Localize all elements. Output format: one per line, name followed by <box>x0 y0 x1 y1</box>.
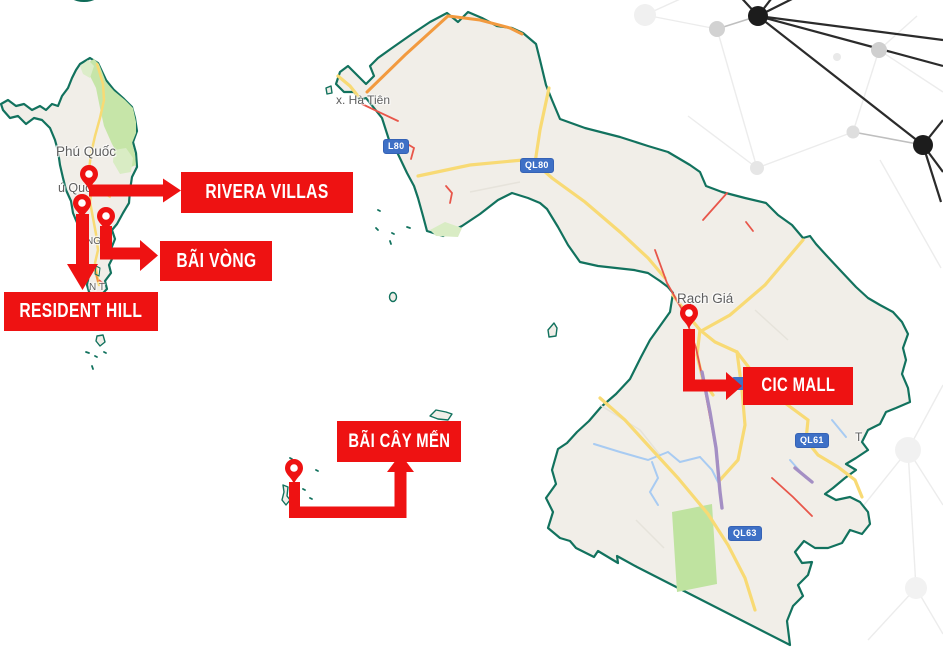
label-bai-vong[interactable]: BÃI VÒNG <box>160 241 272 281</box>
arrow-bai-cay-men <box>289 454 414 518</box>
label-resident-hill[interactable]: RESIDENT HILL <box>4 292 158 331</box>
label-cic-mall[interactable]: CIC MALL <box>743 367 853 405</box>
label-bai-cay-men[interactable]: BÃI CÂY MẾN <box>337 421 461 462</box>
label-cic-mall-text: CIC MALL <box>761 375 835 397</box>
arrow-cic-mall <box>683 329 742 400</box>
map-pin-bai-cay-men[interactable] <box>285 459 303 484</box>
label-bai-vong-text: BÃI VÒNG <box>176 250 256 273</box>
label-bai-cay-men-text: BÃI CÂY MẾN <box>348 431 450 453</box>
label-resident-hill-text: RESIDENT HILL <box>20 300 143 323</box>
map-pin-cic-mall[interactable] <box>680 304 698 329</box>
arrow-bai-vong <box>100 226 158 271</box>
arrow-resident-hill <box>67 214 98 290</box>
map-canvas: Phú Quốc ú Quốc NG T N T x. Hà Tiên Rạch… <box>0 0 943 654</box>
map-pin-bai-vong[interactable] <box>97 207 115 232</box>
label-rivera-villas[interactable]: RIVERA VILLAS <box>181 172 353 213</box>
label-rivera-villas-text: RIVERA VILLAS <box>205 181 328 204</box>
arrows <box>67 179 742 519</box>
arrow-rivera-villas <box>89 179 181 203</box>
